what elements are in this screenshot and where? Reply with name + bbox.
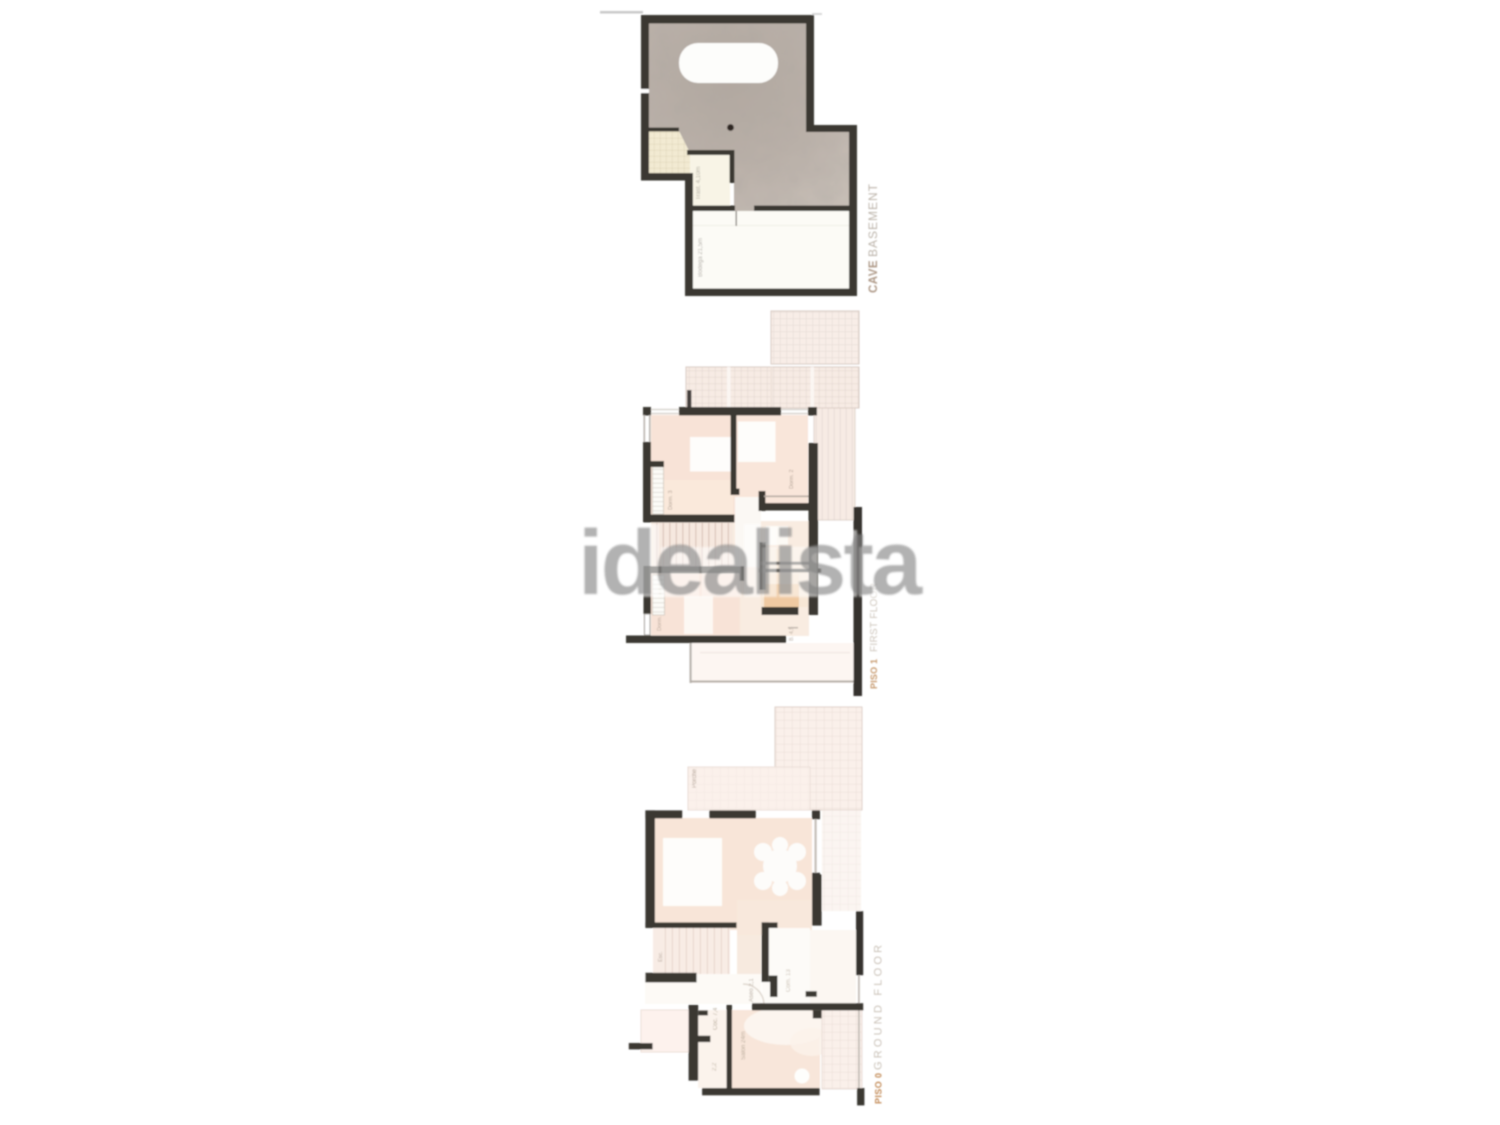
svg-text:CAVE: CAVE bbox=[868, 260, 880, 293]
svg-text:2,2: 2,2 bbox=[712, 1062, 718, 1071]
svg-text:Dorm. 2: Dorm. 2 bbox=[789, 469, 795, 489]
svg-text:Dorm. 3: Dorm. 3 bbox=[668, 490, 674, 510]
svg-text:Coc. 7,4: Coc. 7,4 bbox=[713, 1007, 719, 1030]
svg-text:Porche: Porche bbox=[692, 768, 698, 788]
svg-text:idealista: idealista bbox=[578, 512, 923, 614]
svg-text:Esc.: Esc. bbox=[658, 951, 664, 962]
svg-text:Bodega 21,5m: Bodega 21,5m bbox=[698, 238, 704, 277]
svg-text:PISO 1: PISO 1 bbox=[869, 659, 879, 689]
svg-text:GROUND FLOOR: GROUND FLOOR bbox=[873, 942, 885, 1070]
svg-text:Aseo 2,1: Aseo 2,1 bbox=[749, 978, 755, 1002]
svg-text:BASEMENT: BASEMENT bbox=[866, 183, 880, 257]
svg-text:PISO 0: PISO 0 bbox=[874, 1073, 884, 1104]
svg-text:Salon 24m: Salon 24m bbox=[741, 1031, 747, 1060]
svg-text:Trast. 4,10m: Trast. 4,10m bbox=[696, 167, 702, 200]
svg-text:B. 4,5: B. 4,5 bbox=[789, 627, 795, 641]
svg-text:Com. 13: Com. 13 bbox=[786, 969, 792, 992]
